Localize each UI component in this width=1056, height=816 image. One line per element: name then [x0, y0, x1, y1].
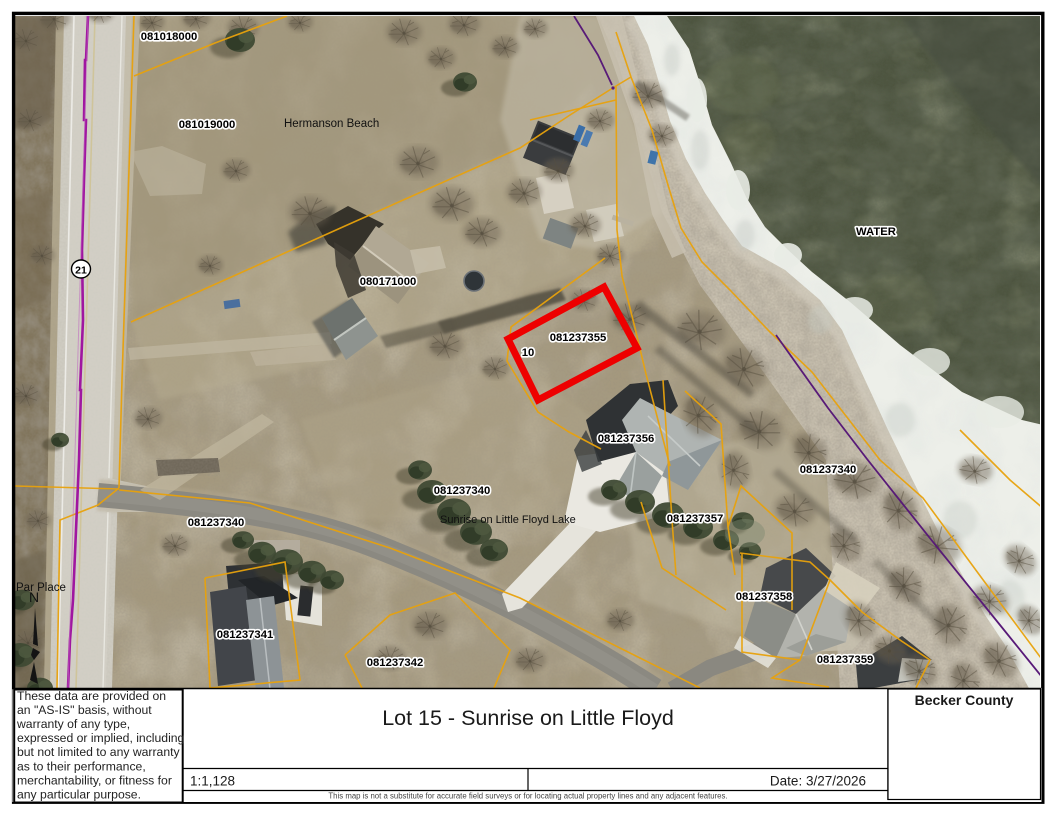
svg-text:081237355: 081237355 — [550, 332, 607, 344]
svg-text:081237340: 081237340 — [188, 517, 245, 529]
svg-text:Lot 15 - Sunrise on Little Flo: Lot 15 - Sunrise on Little Floyd — [382, 706, 674, 730]
svg-text:081237357: 081237357 — [667, 513, 724, 525]
svg-text:an "AS-IS" basis, without: an "AS-IS" basis, without — [17, 703, 152, 717]
svg-text:merchantability, or fitness fo: merchantability, or fitness for — [17, 773, 172, 787]
svg-text:Hermanson Beach: Hermanson Beach — [284, 118, 379, 130]
svg-text:WATER: WATER — [856, 226, 896, 238]
svg-text:081237356: 081237356 — [598, 433, 655, 445]
svg-text:These data are provided on: These data are provided on — [17, 689, 166, 703]
svg-text:21: 21 — [75, 265, 87, 277]
svg-text:081237359: 081237359 — [817, 654, 874, 666]
svg-text:080171000: 080171000 — [360, 276, 417, 288]
svg-text:081237342: 081237342 — [367, 657, 424, 669]
svg-text:081237341: 081237341 — [217, 629, 274, 641]
svg-text:but not limited to any warrant: but not limited to any warranty — [17, 745, 180, 759]
svg-text:081237340: 081237340 — [800, 464, 857, 476]
svg-text:any particular purpose.: any particular purpose. — [17, 788, 141, 802]
svg-text:expressed or implied, includin: expressed or implied, including — [17, 731, 184, 745]
svg-text:This map is not a substitute f: This map is not a substitute for accurat… — [328, 792, 727, 801]
svg-text:Date: 3/27/2026: Date: 3/27/2026 — [770, 774, 866, 789]
svg-text:N: N — [29, 589, 39, 605]
svg-text:warranty of any type,: warranty of any type, — [16, 717, 130, 731]
svg-text:Sunrise on Little Floyd Lake: Sunrise on Little Floyd Lake — [440, 514, 576, 526]
svg-text:as to their performance,: as to their performance, — [17, 759, 146, 773]
svg-text:081018000: 081018000 — [141, 31, 198, 43]
svg-text:Par Place: Par Place — [16, 582, 66, 594]
svg-text:081237358: 081237358 — [736, 591, 793, 603]
svg-text:081019000: 081019000 — [179, 119, 236, 131]
svg-text:10: 10 — [522, 347, 535, 359]
svg-text:1:1,128: 1:1,128 — [190, 774, 235, 789]
svg-text:081237340: 081237340 — [434, 485, 491, 497]
svg-text:Becker County: Becker County — [915, 692, 1014, 708]
